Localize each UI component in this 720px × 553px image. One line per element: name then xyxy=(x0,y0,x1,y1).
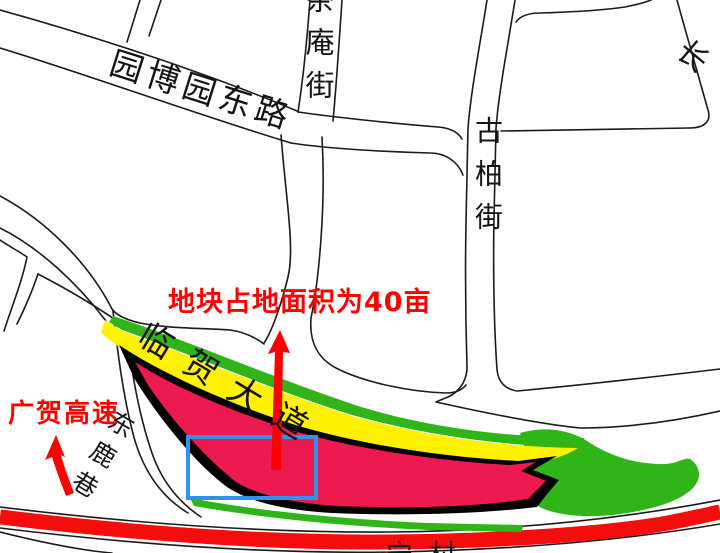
road-line-linhe-northwest xyxy=(0,196,264,344)
road-line-top-right-block xyxy=(516,0,651,22)
highway-annotation: 广贺高速 xyxy=(8,401,120,427)
map-canvas: 园博园东路 茶庵街 古柏街 临贺大道 东鹿巷 长 宁村 地块占地面积为40亩 广… xyxy=(0,0,720,553)
road-line-west-block-corner xyxy=(0,240,27,331)
road-line-eastwest-south-west xyxy=(291,143,463,175)
road-line-north-branch-1 xyxy=(127,0,140,42)
parcel-area-annotation: 地块占地面积为40亩 xyxy=(168,289,432,316)
road-label-gubai-street: 古柏街 xyxy=(473,116,501,245)
road-label-chaan-street: 茶庵街 xyxy=(303,0,332,113)
road-label-partial-bottom: 宁村 xyxy=(386,542,472,553)
road-line-eastwest-north-west xyxy=(298,112,462,139)
road-line-north-branch-2 xyxy=(149,0,161,36)
road-line-chaan-south-east-linhe-north xyxy=(311,137,466,393)
